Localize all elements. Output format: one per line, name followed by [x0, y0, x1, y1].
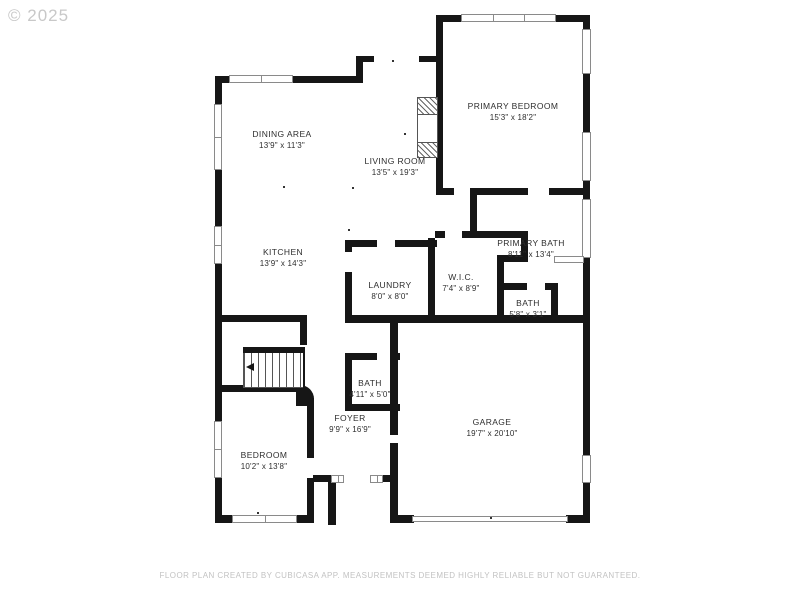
window-primary-bedroom-top	[461, 14, 556, 22]
wall-laundry-north-a	[345, 240, 377, 247]
wall-foyer-south-a	[313, 475, 333, 482]
room-label-bath-upper: BATH 5'8" x 3'1"	[509, 298, 546, 320]
door-gap-laundry-west	[345, 252, 352, 272]
window-mullion	[261, 76, 262, 82]
room-label-garage: GARAGE 19'7" x 20'10"	[466, 417, 517, 439]
room-label-foyer: FOYER 9'9" x 16'9"	[329, 413, 371, 435]
stair-direction-arrow-icon	[246, 363, 254, 371]
window-mullion	[215, 449, 221, 450]
window-mullion	[338, 476, 339, 482]
wall-pb-bottom-c	[549, 188, 590, 195]
front-door-sidelight-left	[331, 475, 344, 483]
wall-garage-west-lower	[390, 443, 398, 523]
window-pb-right-mid	[582, 132, 591, 181]
window-pb-right-upper	[582, 29, 591, 74]
window-bedroom-left	[214, 421, 222, 478]
wall-exterior-right	[583, 15, 590, 523]
room-label-primary-bedroom: PRIMARY BEDROOM 15'3" x 18'2"	[468, 101, 559, 123]
room-name: KITCHEN	[260, 247, 306, 258]
wall-laundry-north-b	[395, 240, 437, 247]
room-dimensions: 13'9" x 14'3"	[260, 258, 306, 269]
room-dimensions: 19'7" x 20'10"	[466, 428, 517, 439]
fixture-dot	[257, 512, 259, 514]
window-mullion	[265, 516, 266, 522]
window-kitchen-left	[214, 226, 222, 264]
wall-south-strip	[345, 315, 590, 323]
wall-top-stub-left	[356, 56, 374, 62]
room-name: DINING AREA	[252, 129, 311, 140]
room-dimensions: 10'2" x 13'8"	[241, 461, 288, 472]
room-dimensions: 4'11" x 5'0"	[349, 389, 390, 400]
garage-side-door	[582, 455, 591, 483]
window-bedroom-bottom	[232, 515, 297, 523]
room-name: FOYER	[329, 413, 371, 424]
wall-garage-west-upper	[390, 322, 398, 435]
room-name: LAUNDRY	[368, 280, 411, 291]
room-dimensions: 9'9" x 16'9"	[329, 424, 371, 435]
room-name: PRIMARY BEDROOM	[468, 101, 559, 112]
window-mullion	[215, 245, 221, 246]
fixture-dot	[404, 133, 406, 135]
wall-hall-west	[470, 195, 477, 235]
room-label-kitchen: KITCHEN 13'9" x 14'3"	[260, 247, 306, 269]
room-name: BATH	[349, 378, 390, 389]
door-gap-wic	[445, 231, 462, 238]
wall-garage-bottom-a	[390, 515, 414, 523]
room-label-living: LIVING ROOM 13'5" x 19'3"	[364, 156, 425, 178]
fireplace-box	[417, 114, 438, 144]
room-name: W.I.C.	[442, 272, 479, 283]
room-dimensions: 7'4" x 8'9"	[442, 283, 479, 294]
room-dimensions: 5'8" x 3'1"	[509, 309, 546, 320]
room-label-wic: W.I.C. 7'4" x 8'9"	[442, 272, 479, 294]
wall-bedroom-right-upper	[307, 398, 314, 458]
room-dimensions: 8'0" x 8'0"	[368, 291, 411, 302]
wall-bedroom-bottom-b	[296, 515, 314, 523]
wall-pb-bottom-a	[436, 188, 454, 195]
window-mullion	[524, 15, 525, 21]
fixture-dot	[392, 60, 394, 62]
fixture-dot	[490, 517, 492, 519]
wall-hall-stub	[300, 315, 307, 345]
room-name: PRIMARY BATH	[497, 238, 565, 249]
fixture-dot	[348, 229, 350, 231]
room-label-bath-lower: BATH 4'11" x 5'0"	[349, 378, 390, 400]
window-mullion	[377, 476, 378, 482]
window-dining-top	[229, 75, 293, 83]
fixture-dot	[352, 187, 354, 189]
wall-pb-bottom-b	[470, 188, 528, 195]
front-door-sidelight-right	[370, 475, 383, 483]
room-name: GARAGE	[466, 417, 517, 428]
disclaimer-text: FLOOR PLAN CREATED BY CUBICASA APP. MEAS…	[0, 571, 800, 580]
wall-wic-west	[428, 238, 435, 322]
wall-garage-bottom-b	[566, 515, 590, 523]
room-label-bedroom: BEDROOM 10'2" x 13'8"	[241, 450, 288, 472]
copyright-watermark: © 2025	[8, 6, 69, 26]
room-dimensions: 13'5" x 19'3"	[364, 167, 425, 178]
floorplan-canvas: © 2025	[0, 0, 800, 600]
room-dimensions: 13'9" x 11'3"	[252, 140, 311, 151]
wall-kitchen-bottom	[215, 315, 307, 322]
window-mullion	[493, 15, 494, 21]
room-name: BATH	[509, 298, 546, 309]
room-dimensions: 15'3" x 18'2"	[468, 112, 559, 123]
fixture-dot	[283, 186, 285, 188]
room-dimensions: 8'11" x 13'4"	[497, 249, 565, 260]
room-name: LIVING ROOM	[364, 156, 425, 167]
window-dining-left	[214, 104, 222, 170]
wall-porch-west	[328, 480, 336, 525]
window-mullion	[215, 137, 221, 138]
room-label-dining: DINING AREA 13'9" x 11'3"	[252, 129, 311, 151]
room-name: BEDROOM	[241, 450, 288, 461]
room-label-laundry: LAUNDRY 8'0" x 8'0"	[368, 280, 411, 302]
room-label-primary-bath: PRIMARY BATH 8'11" x 13'4"	[497, 238, 565, 260]
wall-bath-north-a	[497, 283, 527, 290]
window-primary-bath-right	[582, 199, 591, 258]
